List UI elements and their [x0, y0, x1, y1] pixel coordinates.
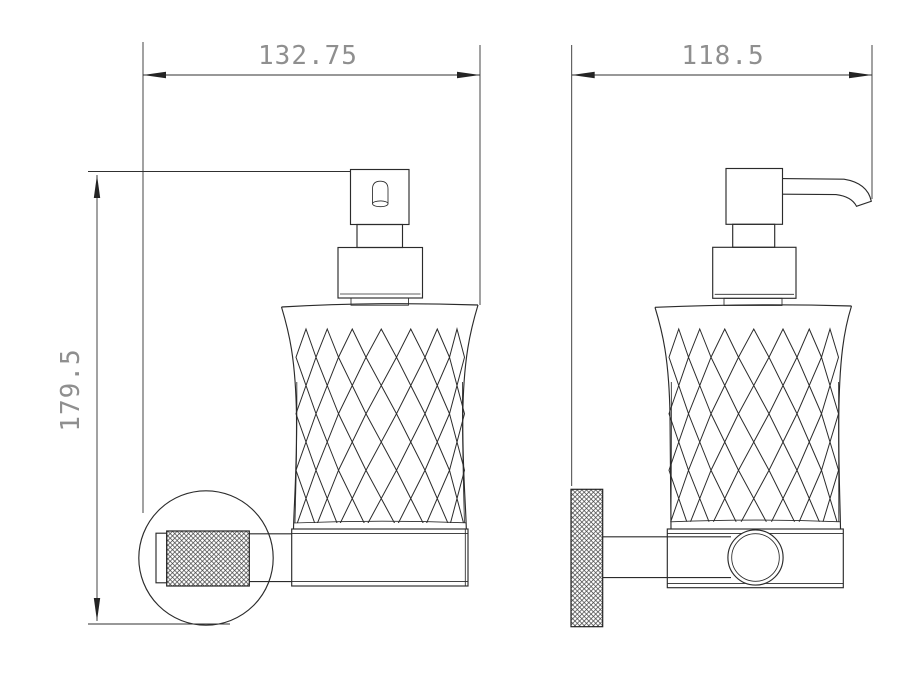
pump-nozzle-slot	[373, 181, 389, 203]
technical-drawing-canvas: 132.75 179.5 118.5	[0, 0, 917, 699]
bottle-left-side-2	[655, 307, 671, 529]
bottle-left-side	[282, 307, 297, 529]
arrowhead-left	[572, 72, 595, 78]
soap-dispenser-drawing: 132.75 179.5 118.5	[0, 0, 917, 699]
dimension-value-left-width: 132.75	[258, 41, 358, 71]
dimension-value-left-height: 179.5	[56, 348, 86, 431]
pump-neck	[357, 225, 403, 248]
dimension-left-width: 132.75	[143, 41, 480, 513]
bottle-right-side-2	[839, 306, 852, 529]
bottle-bottom-edge-2	[671, 520, 841, 522]
left-view	[139, 170, 478, 626]
arrowhead-left	[143, 72, 166, 78]
pump-head-front	[351, 170, 410, 225]
arrowhead-right	[849, 72, 872, 78]
arrowhead-right	[457, 72, 480, 78]
arrowhead-top	[94, 175, 100, 198]
knurled-wall-plate	[571, 489, 603, 626]
knurled-knob	[167, 531, 250, 586]
pump-collar	[338, 248, 423, 299]
pump-nozzle-hole	[373, 201, 389, 207]
dimension-value-right-width: 118.5	[681, 41, 764, 71]
bottle-shoulder-side	[655, 305, 852, 308]
bottle-bottom-edge	[294, 521, 466, 523]
holder-band	[292, 529, 468, 586]
pump-spout	[783, 179, 872, 207]
knob-wall-cap	[156, 533, 167, 583]
pump-collar-side	[713, 247, 796, 298]
pump-head-side	[726, 169, 783, 225]
bottle-right-side	[463, 305, 478, 529]
right-view	[571, 169, 871, 627]
arrowhead-bottom	[94, 598, 100, 621]
mount-boss-outer-circle	[728, 530, 783, 585]
pump-neck-side	[733, 224, 775, 247]
dimension-right-width: 118.5	[572, 41, 872, 486]
holder-band-inner-lines	[292, 529, 468, 586]
